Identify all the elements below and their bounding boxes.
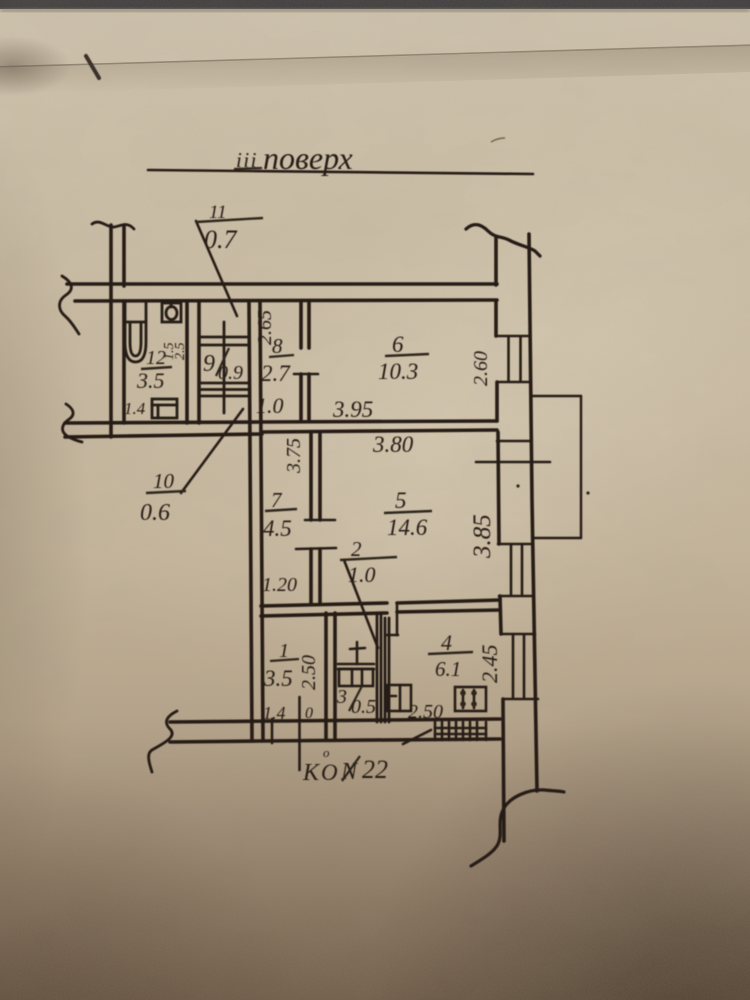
svg-text:2.60: 2.60: [470, 351, 492, 386]
svg-text:1.4: 1.4: [124, 399, 146, 418]
svg-text:3.5: 3.5: [263, 666, 293, 691]
svg-text:2: 2: [351, 537, 362, 561]
svg-text:3: 3: [336, 686, 347, 708]
svg-text:9: 9: [203, 351, 215, 377]
svg-text:о: о: [323, 745, 330, 760]
svg-text:10: 10: [153, 469, 175, 493]
svg-text:3.95: 3.95: [332, 397, 373, 422]
svg-text:2.50: 2.50: [408, 701, 443, 723]
svg-text:6: 6: [392, 332, 404, 357]
svg-text:5: 5: [395, 488, 407, 513]
svg-text:0.6: 0.6: [140, 500, 170, 526]
svg-text:0: 0: [305, 705, 313, 722]
svg-text:3.80: 3.80: [372, 432, 414, 457]
svg-text:О: О: [321, 760, 338, 785]
svg-text:1.0: 1.0: [256, 393, 284, 418]
svg-text:2.45: 2.45: [477, 645, 502, 684]
svg-text:2.65: 2.65: [254, 310, 276, 345]
svg-text:К: К: [302, 760, 321, 786]
svg-text:14.6: 14.6: [387, 515, 428, 540]
svg-text:10.3: 10.3: [378, 359, 418, 384]
svg-text:2.50: 2.50: [298, 655, 320, 690]
svg-text:3.85: 3.85: [469, 514, 496, 559]
svg-text:1.20: 1.20: [262, 574, 297, 596]
svg-text:22: 22: [362, 755, 388, 784]
svg-text:0.7: 0.7: [204, 225, 238, 254]
svg-text:7: 7: [271, 488, 283, 512]
svg-text:4.5: 4.5: [263, 516, 292, 541]
svg-text:1.0: 1.0: [348, 562, 376, 587]
svg-text:3.75: 3.75: [283, 438, 305, 474]
svg-text:0.5: 0.5: [351, 696, 376, 718]
svg-text:3.5: 3.5: [136, 368, 165, 393]
svg-text:4: 4: [441, 630, 452, 655]
svg-text:2.7: 2.7: [261, 361, 291, 386]
svg-text:0.9: 0.9: [218, 362, 243, 384]
svg-text:6.1: 6.1: [435, 657, 461, 681]
svg-text:2.5: 2.5: [173, 343, 188, 361]
svg-text:поверх: поверх: [263, 140, 353, 176]
svg-text:1.4: 1.4: [263, 703, 286, 723]
